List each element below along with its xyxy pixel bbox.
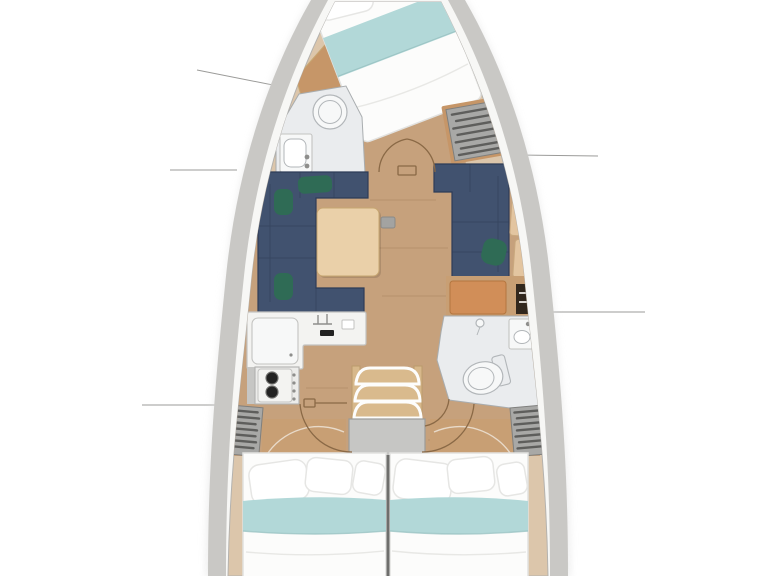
mast-post [381,217,395,228]
engine-platform [349,419,425,456]
forward-head-sink-basin [284,139,306,167]
aft-bed-starboard [390,453,529,576]
boat-floorplan-svg [0,0,768,576]
callout-leader-line [518,155,598,156]
stove-gimbal-strip [247,367,255,404]
stove-burner [266,372,278,384]
nav-seat [450,281,506,314]
galley-board [342,320,354,329]
green-cushion [297,175,332,194]
salon-table [317,208,379,276]
aft-bed-port [243,453,387,576]
aft-head [437,316,541,412]
aft-head-sink-basin [514,331,530,344]
bed-pillow [351,460,386,497]
bed-blanket [243,497,386,534]
fridge-lid-latch [289,353,292,356]
galley-sink-accessory [320,330,334,336]
companionway-step [356,368,419,384]
companionway-step [355,385,420,401]
bed-pillow [446,456,495,495]
aft-cabin-headboard [262,419,346,457]
bed-pillow [495,461,528,497]
companionway-step [354,402,421,418]
bed-blanket [390,497,528,534]
green-cushion [274,273,293,300]
bed-pillow [304,457,353,496]
floorplan-image [0,0,768,576]
aft-cabin-headboard [430,419,516,457]
forward-head-faucet [305,155,310,160]
fridge-lid [252,318,298,364]
green-cushion [274,189,293,215]
companionway [349,366,425,456]
forward-head-faucet [305,164,310,169]
stove-burner [266,386,278,398]
companionway-steps [354,368,421,418]
aft-head-shower [476,319,484,327]
